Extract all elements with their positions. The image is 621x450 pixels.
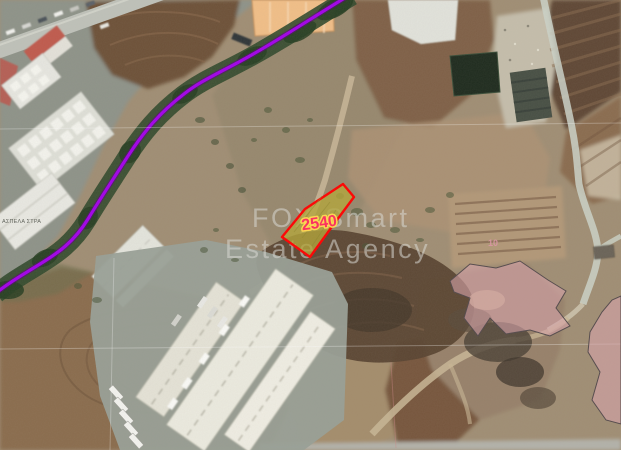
parcel-10-label: 10 xyxy=(488,238,498,248)
small-building-right xyxy=(593,245,614,259)
watermark-line2: Estate Agency xyxy=(225,234,430,264)
greenhouse-net-field xyxy=(450,52,500,96)
factory-complex xyxy=(90,240,348,450)
satellite-map-canvas: FOX Smart Estate Agency 2540 10 ΑΣΠΕΛΑ Σ… xyxy=(0,0,621,450)
satellite-map-image: FOX Smart Estate Agency 2540 10 ΑΣΠΕΛΑ Σ… xyxy=(0,0,621,450)
building-name-label: ΑΣΠΕΛΑ ΣΤΡΑ xyxy=(2,219,41,225)
dark-panel-rows xyxy=(510,68,553,123)
